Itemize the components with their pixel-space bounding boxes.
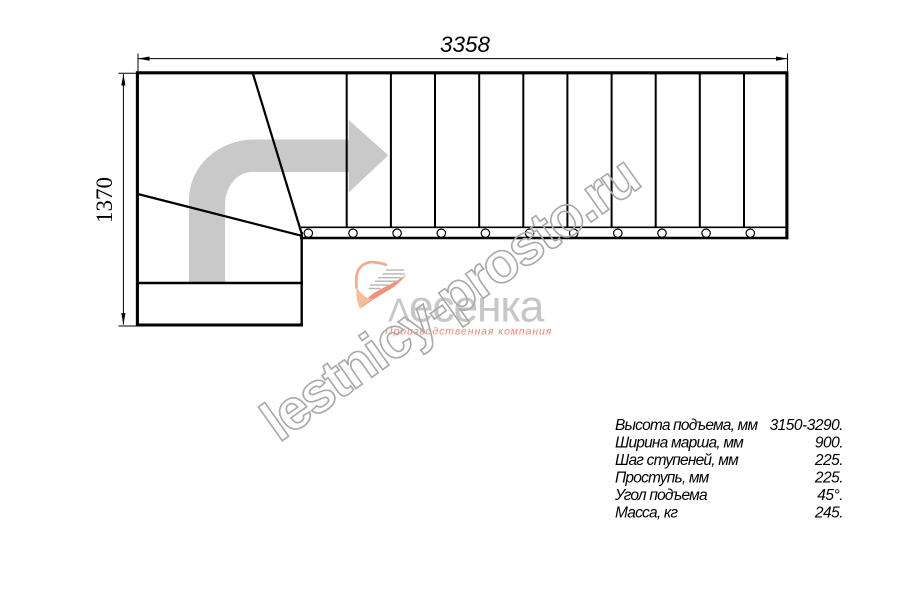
- svg-text:1370: 1370: [92, 177, 117, 223]
- svg-text:Ширина марша, мм: Ширина марша, мм: [615, 435, 744, 452]
- svg-text:Угол подъема: Угол подъема: [614, 487, 708, 504]
- svg-text:3150-3290.: 3150-3290.: [770, 417, 843, 434]
- svg-text:Высота подъема, мм: Высота подъема, мм: [615, 417, 758, 434]
- svg-text:245.: 245.: [814, 505, 843, 522]
- svg-text:225.: 225.: [814, 470, 843, 487]
- svg-text:3358: 3358: [440, 32, 491, 57]
- svg-text:225.: 225.: [814, 452, 843, 469]
- svg-text:Масса, кг: Масса, кг: [615, 505, 678, 522]
- svg-text:900.: 900.: [815, 435, 843, 452]
- svg-text:Проступь, мм: Проступь, мм: [615, 470, 710, 487]
- svg-text:Шаг ступеней, мм: Шаг ступеней, мм: [615, 452, 739, 469]
- svg-text:45°.: 45°.: [817, 487, 843, 504]
